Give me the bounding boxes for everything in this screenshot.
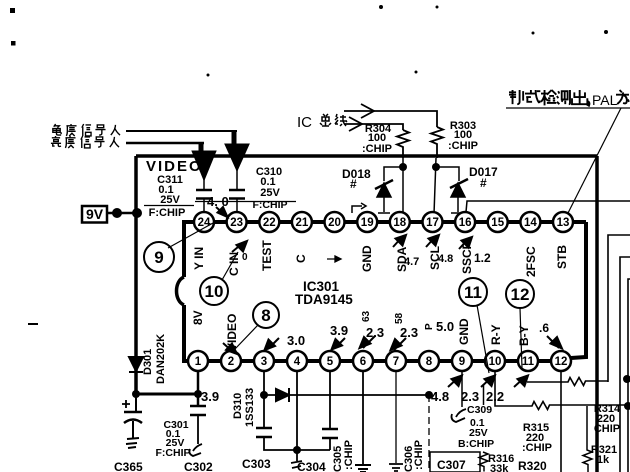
- svg-text:2.2: 2.2: [486, 389, 504, 404]
- svg-text:B-Y: B-Y: [517, 325, 531, 346]
- svg-text:1.2: 1.2: [474, 251, 491, 265]
- svg-text:D301: D301: [142, 349, 154, 375]
- svg-text:P: P: [424, 323, 435, 330]
- svg-text:19: 19: [361, 217, 374, 229]
- svg-text:33k: 33k: [490, 463, 509, 472]
- svg-text:C309: C309: [467, 404, 492, 416]
- svg-text:F:CHIP: F:CHIP: [156, 447, 191, 459]
- svg-text:STB: STB: [555, 245, 569, 269]
- svg-text:11: 11: [464, 283, 482, 302]
- svg-text:2.3: 2.3: [366, 325, 384, 340]
- svg-text:R320: R320: [518, 459, 547, 472]
- svg-text:14: 14: [524, 217, 537, 229]
- svg-text:6: 6: [360, 356, 366, 368]
- svg-text:2FSC: 2FSC: [524, 246, 538, 277]
- svg-text:VIDEO: VIDEO: [146, 158, 203, 175]
- svg-text:4. 0: 4. 0: [207, 194, 229, 209]
- svg-text:18: 18: [393, 217, 406, 229]
- svg-text:13: 13: [557, 217, 570, 229]
- svg-text:PAL: PAL: [592, 92, 618, 108]
- svg-text:1: 1: [195, 356, 202, 368]
- svg-text:16: 16: [459, 217, 472, 229]
- svg-text:63: 63: [361, 310, 372, 322]
- svg-text:C: C: [294, 254, 308, 263]
- svg-text::CHIP: :CHIP: [522, 442, 552, 454]
- svg-text:IC: IC: [297, 114, 312, 131]
- svg-text:1k: 1k: [597, 454, 610, 466]
- svg-text:DAN202K: DAN202K: [155, 334, 167, 384]
- svg-text::CHIP: :CHIP: [413, 440, 425, 470]
- svg-text:3.9: 3.9: [330, 323, 348, 338]
- svg-text:F:CHIP: F:CHIP: [149, 207, 186, 219]
- svg-text:Y IN: Y IN: [192, 247, 206, 270]
- svg-text:9: 9: [154, 248, 163, 267]
- svg-text:3: 3: [261, 356, 267, 368]
- svg-text:12: 12: [511, 285, 530, 304]
- svg-text:10: 10: [205, 282, 224, 301]
- svg-text:R-Y: R-Y: [489, 324, 503, 345]
- svg-text:CHIP: CHIP: [594, 423, 620, 435]
- svg-text:0: 0: [242, 252, 248, 263]
- svg-text:2.3: 2.3: [400, 325, 418, 340]
- svg-text::CHIP: :CHIP: [343, 440, 355, 470]
- svg-text:4.7: 4.7: [404, 256, 419, 268]
- svg-text:GND: GND: [457, 318, 471, 345]
- svg-text::CHIP: :CHIP: [362, 143, 392, 155]
- svg-text:C307: C307: [437, 458, 466, 472]
- svg-text:12: 12: [555, 356, 568, 368]
- svg-text:8: 8: [426, 356, 433, 368]
- svg-text:2: 2: [228, 356, 234, 368]
- svg-text:4.8: 4.8: [438, 253, 453, 265]
- svg-text:20: 20: [328, 217, 341, 229]
- svg-text:F:CHIP: F:CHIP: [253, 199, 288, 211]
- svg-text:GND: GND: [360, 245, 374, 272]
- svg-text:10: 10: [489, 356, 502, 368]
- svg-text:25V: 25V: [260, 187, 280, 199]
- svg-text:5: 5: [327, 356, 334, 368]
- svg-text:9: 9: [459, 356, 465, 368]
- svg-text:22: 22: [263, 217, 276, 229]
- svg-text:B:CHIP: B:CHIP: [458, 438, 494, 450]
- svg-text:4: 4: [294, 356, 301, 368]
- svg-text:D310: D310: [232, 393, 244, 419]
- svg-text:9V: 9V: [86, 206, 104, 222]
- svg-text:2.3: 2.3: [461, 389, 479, 404]
- svg-text:11: 11: [522, 356, 535, 368]
- svg-text:C304: C304: [297, 460, 326, 472]
- svg-text:C IN: C IN: [227, 252, 241, 276]
- svg-text:3.9: 3.9: [201, 389, 219, 404]
- svg-text:#: #: [350, 177, 357, 191]
- svg-text:15: 15: [491, 217, 504, 229]
- svg-text:C303: C303: [242, 457, 271, 471]
- svg-text:#: #: [480, 176, 487, 190]
- svg-text:25V: 25V: [160, 194, 180, 206]
- svg-text:C302: C302: [184, 460, 213, 472]
- svg-text:TEST: TEST: [260, 240, 274, 271]
- svg-text:5.0: 5.0: [436, 319, 454, 334]
- svg-text:3.0: 3.0: [287, 333, 305, 348]
- svg-text:8: 8: [261, 306, 270, 325]
- svg-text:23: 23: [230, 217, 243, 229]
- svg-text:21: 21: [296, 217, 309, 229]
- svg-text:C365: C365: [114, 460, 143, 472]
- svg-text::CHIP: :CHIP: [448, 140, 478, 152]
- svg-text:TDA9145: TDA9145: [295, 292, 353, 307]
- svg-text:4.8: 4.8: [431, 389, 449, 404]
- svg-text:7: 7: [393, 356, 399, 368]
- svg-text:17: 17: [426, 217, 439, 229]
- svg-text:8V: 8V: [191, 310, 205, 325]
- svg-text:1SS133: 1SS133: [244, 388, 256, 427]
- svg-text:.6: .6: [539, 321, 549, 335]
- svg-text:58: 58: [394, 312, 405, 324]
